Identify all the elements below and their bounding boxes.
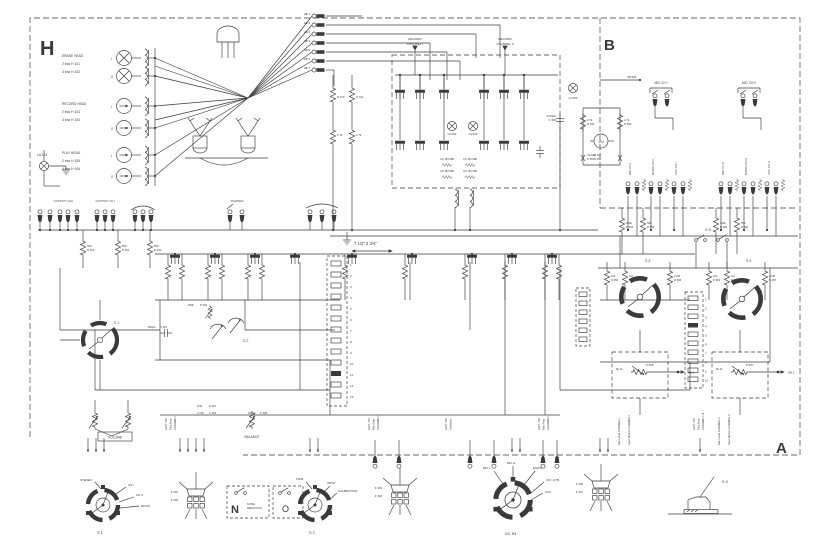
svg-text:3: 3 bbox=[350, 285, 352, 289]
svg-text:Rec Level CHANNEL I: Rec Level CHANNEL I bbox=[617, 418, 621, 445]
svg-text:F 501: F 501 bbox=[171, 490, 179, 494]
svg-text:R 351: R 351 bbox=[587, 122, 595, 126]
resv bbox=[80, 239, 85, 257]
svg-text:2.2M: 2.2M bbox=[769, 274, 776, 278]
transistor-icon bbox=[395, 141, 405, 150]
tape-recorder-schematic: HBAERASE HEAD2 trac H 1014 trac H 102III… bbox=[0, 0, 817, 543]
head-assembly-icon bbox=[236, 118, 260, 153]
svg-text:AUX: AUX bbox=[545, 490, 551, 494]
section-borders: HBA bbox=[30, 18, 800, 457]
resv bbox=[179, 263, 184, 281]
svg-text:REDUCTION: REDUCTION bbox=[247, 507, 262, 510]
phones-jack-icon bbox=[240, 210, 245, 223]
svg-text:S 1: S 1 bbox=[114, 321, 119, 325]
svg-text:2 trac H 105: 2 trac H 105 bbox=[62, 159, 80, 163]
svg-text:N: N bbox=[231, 504, 239, 516]
svg-text:HB 3: HB 3 bbox=[304, 30, 311, 34]
erase-head-icon bbox=[117, 51, 132, 66]
connector-pin-icon bbox=[312, 23, 325, 27]
connector-pin-icon bbox=[312, 50, 325, 54]
panel-plug-icon bbox=[492, 455, 497, 468]
input-jack-icon bbox=[728, 182, 733, 195]
svg-text:9: 9 bbox=[350, 351, 352, 355]
svg-text:MIC CH I: MIC CH I bbox=[654, 81, 667, 85]
record-head-icon bbox=[117, 121, 132, 136]
svg-text:LA 502: LA 502 bbox=[448, 132, 457, 136]
svg-text:13: 13 bbox=[350, 395, 354, 399]
svg-text:HB 1: HB 1 bbox=[304, 12, 311, 16]
svg-text:HB 6: HB 6 bbox=[304, 57, 311, 61]
transistor-icon bbox=[250, 255, 260, 264]
svg-text:RECORD: RECORD bbox=[408, 37, 422, 41]
svg-text:2: 2 bbox=[705, 307, 707, 311]
lamp-la503-icon bbox=[468, 121, 477, 130]
svg-text:4: 4 bbox=[350, 296, 352, 300]
svg-text:2.2M: 2.2M bbox=[674, 274, 681, 278]
resv bbox=[165, 263, 170, 281]
phones-jack-icon bbox=[228, 210, 233, 223]
output-jack-icon bbox=[66, 210, 71, 223]
connector-pin-icon bbox=[312, 14, 325, 18]
svg-text:4 trac H 106: 4 trac H 106 bbox=[62, 167, 80, 171]
svg-text:Rec Amp: Rec Amp bbox=[542, 419, 546, 430]
svg-text:CH II: CH II bbox=[136, 493, 143, 497]
svg-text:CHANNEL II: CHANNEL II bbox=[496, 42, 513, 46]
svg-text:250k: 250k bbox=[188, 303, 194, 307]
svg-text:AUX CH I: AUX CH I bbox=[674, 162, 678, 175]
svg-text:R 100: R 100 bbox=[337, 95, 345, 99]
svg-text:P 506: P 506 bbox=[646, 363, 654, 367]
input-jack-icon bbox=[774, 182, 779, 195]
svg-text:4 trac H 102: 4 trac H 102 bbox=[62, 70, 80, 74]
resv bbox=[735, 179, 739, 192]
svg-text:LA 101: LA 101 bbox=[37, 153, 47, 157]
svg-text:AB 2: AB 2 bbox=[788, 371, 795, 375]
svg-text:H: H bbox=[40, 38, 54, 60]
connector-pin-icon bbox=[312, 32, 325, 36]
coil bbox=[455, 189, 458, 208]
resv bbox=[640, 216, 645, 234]
resv bbox=[622, 269, 627, 287]
svg-text:2: 2 bbox=[350, 274, 352, 278]
record-head-icon bbox=[117, 99, 132, 114]
svg-text:Rec Level CHANNEL II: Rec Level CHANNEL II bbox=[717, 417, 721, 445]
volume-pot-icon bbox=[89, 411, 98, 429]
output-jack-icon bbox=[95, 210, 100, 223]
panel-plug-icon bbox=[373, 455, 378, 468]
rec-level-section: 5k linP 506AB 1Rec Level CHANNEL IInput … bbox=[164, 330, 795, 445]
output-jack-icon bbox=[48, 210, 53, 223]
resv bbox=[219, 263, 224, 281]
svg-text:2 trac H 101: 2 trac H 101 bbox=[62, 62, 80, 66]
svg-text:OUTPUT CHII: OUTPUT CHII bbox=[53, 199, 72, 203]
svg-text:PLAY HEAD: PLAY HEAD bbox=[62, 151, 81, 155]
resv bbox=[713, 216, 718, 234]
svg-text:10: 10 bbox=[705, 379, 709, 383]
svg-text:F 307: F 307 bbox=[576, 490, 584, 494]
svg-text:12: 12 bbox=[350, 384, 354, 388]
svg-text:S 2: S 2 bbox=[243, 339, 248, 343]
svg-text:OUTPUT CH I: OUTPUT CH I bbox=[95, 199, 114, 203]
detail-row: STEREOCH ICH IIMONOS 1F 501F 502NNOISERE… bbox=[80, 461, 732, 536]
svg-text:AA 116: AA 116 bbox=[593, 153, 602, 157]
svg-text:4: 4 bbox=[705, 325, 707, 329]
transistor-icon bbox=[499, 141, 509, 150]
svg-text:250μF: 250μF bbox=[248, 411, 256, 415]
mic-jack-icon bbox=[653, 94, 658, 107]
noise-switch-icon bbox=[279, 488, 291, 495]
svg-text:O: O bbox=[282, 504, 289, 514]
rotary-switch-s4 bbox=[723, 280, 760, 317]
rec-level-pot bbox=[731, 366, 749, 375]
svg-text:I: I bbox=[111, 57, 112, 61]
transistor-icon bbox=[415, 141, 425, 150]
svg-text:9: 9 bbox=[705, 370, 707, 374]
transistor-icon bbox=[439, 141, 449, 150]
schematic-art: HBAERASE HEAD2 trac H 1014 trac H 102III… bbox=[30, 12, 800, 536]
plug-detail-icon bbox=[584, 464, 618, 511]
connector-pin-icon bbox=[312, 59, 325, 63]
resv bbox=[619, 216, 624, 234]
wafer-switch-s2 bbox=[228, 318, 244, 333]
mic-jack-icon bbox=[665, 94, 670, 107]
rec-level-pot bbox=[631, 366, 649, 375]
aux-jack-icon bbox=[332, 210, 337, 223]
svg-text:5k lin: 5k lin bbox=[616, 367, 623, 371]
svg-text:2.7k: 2.7k bbox=[356, 133, 362, 137]
svg-text:LEFT 720: LEFT 720 bbox=[537, 418, 541, 430]
connector-pin-icon bbox=[312, 41, 325, 45]
svg-text:10k: 10k bbox=[611, 274, 616, 278]
resv bbox=[330, 128, 335, 146]
svg-text:S3, S4: S3, S4 bbox=[505, 532, 516, 536]
head-section: ERASE HEAD2 trac H 1014 trac H 102IIIREC… bbox=[37, 48, 156, 186]
resv bbox=[734, 216, 739, 234]
svg-text:HB 2: HB 2 bbox=[304, 21, 311, 25]
svg-text:LEFT 730: LEFT 730 bbox=[444, 418, 448, 430]
rotary-switch-s1 bbox=[83, 323, 117, 357]
resv bbox=[259, 263, 264, 281]
coil bbox=[145, 119, 148, 138]
svg-text:A: A bbox=[776, 440, 787, 457]
svg-text:LEFT 700: LEFT 700 bbox=[164, 418, 168, 430]
svg-text:AUX CH II: AUX CH II bbox=[767, 161, 771, 175]
svg-text:R 359: R 359 bbox=[720, 225, 728, 229]
svg-text:S 2: S 2 bbox=[309, 531, 315, 535]
svg-text:STEREO: STEREO bbox=[80, 478, 93, 482]
play-head-icon bbox=[117, 148, 132, 163]
svg-text:7: 7 bbox=[350, 329, 352, 333]
svg-text:AC 187/188: AC 187/188 bbox=[440, 169, 454, 173]
svg-text:2 trac H 103: 2 trac H 103 bbox=[62, 110, 80, 114]
record-amp-block: RECORDCHANNEL IRECORDCHANNEL IILA 502LA … bbox=[330, 37, 558, 231]
resv bbox=[706, 269, 711, 287]
schematic-page: HBAERASE HEAD2 trac H 1014 trac H 102III… bbox=[0, 0, 817, 543]
svg-text:AC 187/188: AC 187/188 bbox=[463, 169, 477, 173]
svg-text:MIC CH I: MIC CH I bbox=[628, 163, 632, 175]
transistor-icon bbox=[407, 255, 417, 264]
svg-text:I: I bbox=[111, 154, 112, 158]
input-jack-icon bbox=[626, 182, 631, 195]
resv bbox=[115, 239, 120, 257]
volume-pot-icon bbox=[122, 411, 131, 429]
lamp-la500-icon bbox=[568, 83, 577, 92]
svg-text:1M: 1M bbox=[731, 274, 735, 278]
svg-text:MIC H: MIC H bbox=[507, 461, 515, 465]
svg-text:R 354: R 354 bbox=[626, 225, 634, 229]
panel-plug-icon bbox=[555, 455, 560, 468]
svg-text:CHANNEL I: CHANNEL I bbox=[546, 416, 550, 430]
resv bbox=[688, 179, 692, 192]
svg-text:TAPE: TAPE bbox=[296, 477, 303, 481]
svg-text:S 4: S 4 bbox=[746, 259, 751, 263]
panel-plug-icon bbox=[468, 455, 473, 468]
svg-text:Input Device CHANNEL I: Input Device CHANNEL I bbox=[627, 415, 631, 445]
resv bbox=[402, 263, 407, 281]
mic-jack-icon bbox=[753, 94, 758, 107]
output-jack-icon bbox=[38, 210, 43, 223]
coil bbox=[470, 189, 473, 208]
svg-text:CHANNEL II: CHANNEL II bbox=[376, 415, 380, 430]
aux-jack-icon bbox=[308, 210, 313, 223]
input-jack-icon bbox=[719, 182, 724, 195]
svg-text:RADIO CH II: RADIO CH II bbox=[744, 158, 748, 175]
resv bbox=[781, 179, 785, 192]
input-section: MIC CH IMIC CH IIMIC CH IRADIO CH IAUX C… bbox=[626, 81, 785, 236]
svg-text:P 303: P 303 bbox=[200, 303, 207, 307]
output-jack-icon bbox=[133, 210, 138, 223]
resv bbox=[147, 239, 152, 257]
svg-text:CALIBRATION: CALIBRATION bbox=[338, 489, 357, 493]
svg-text:LA 503: LA 503 bbox=[469, 132, 478, 136]
aux-jack-icon bbox=[320, 210, 325, 223]
input-jack-icon bbox=[742, 182, 747, 195]
svg-text:AC 187/188: AC 187/188 bbox=[440, 157, 454, 161]
svg-text:VU: VU bbox=[598, 140, 604, 144]
svg-text:PHONES: PHONES bbox=[231, 199, 244, 203]
wafer-switch-s2 bbox=[210, 324, 226, 339]
svg-text:RADIO: RADIO bbox=[533, 466, 543, 470]
transistor-icon bbox=[290, 255, 300, 264]
svg-text:B: B bbox=[604, 37, 615, 54]
resv bbox=[462, 263, 467, 281]
resv bbox=[758, 179, 762, 192]
svg-text:11: 11 bbox=[350, 373, 353, 377]
output-jack-icon bbox=[58, 210, 63, 223]
svg-text:7 1/2" 3 3/4": 7 1/2" 3 3/4" bbox=[354, 241, 377, 246]
play-head-icon bbox=[117, 169, 132, 184]
transistor-icon bbox=[347, 255, 357, 264]
svg-text:2.7k: 2.7k bbox=[337, 133, 343, 137]
svg-text:NOISE: NOISE bbox=[247, 503, 255, 506]
svg-text:10k: 10k bbox=[713, 274, 718, 278]
resv bbox=[465, 175, 476, 178]
svg-text:5k lin: 5k lin bbox=[716, 367, 723, 371]
svg-text:8: 8 bbox=[705, 361, 707, 365]
svg-text:HB 7: HB 7 bbox=[304, 66, 311, 70]
svg-text:S 1: S 1 bbox=[97, 531, 103, 535]
svg-text:CHANNEL I+II: CHANNEL I+II bbox=[701, 412, 705, 430]
svg-text:LEFT 750: LEFT 750 bbox=[692, 418, 696, 430]
svg-text:56k: 56k bbox=[741, 221, 746, 225]
s3s4-detail-icon bbox=[493, 477, 532, 517]
transistor-icon bbox=[479, 141, 489, 150]
svg-text:R 301: R 301 bbox=[122, 248, 130, 252]
switches: S 1S 2S 3S 4S 5220kR 35456kR 355220kR 35… bbox=[60, 208, 777, 390]
svg-text:Rec Amp: Rec Amp bbox=[372, 419, 376, 430]
svg-text:AC 187/188: AC 187/188 bbox=[463, 157, 477, 161]
svg-text:Play Amp: Play Amp bbox=[697, 418, 701, 430]
svg-text:INPUT: INPUT bbox=[327, 481, 336, 485]
svg-text:AB 1: AB 1 bbox=[688, 371, 695, 375]
connector-pin-icon bbox=[312, 68, 325, 72]
plug-detail-icon bbox=[383, 468, 417, 515]
input-jack-icon bbox=[681, 182, 686, 195]
plug-detail-icon bbox=[179, 472, 213, 519]
s1-detail-icon bbox=[86, 485, 120, 520]
svg-text:S 3: S 3 bbox=[645, 259, 650, 263]
svg-text:10: 10 bbox=[350, 362, 354, 366]
svg-text:LA 500: LA 500 bbox=[569, 96, 578, 100]
resv bbox=[665, 179, 669, 192]
svg-text:CD I (178): CD I (178) bbox=[546, 478, 559, 482]
svg-text:Input Device CHANNEL II: Input Device CHANNEL II bbox=[727, 414, 731, 445]
resv bbox=[349, 86, 354, 104]
svg-text:6: 6 bbox=[350, 318, 352, 322]
svg-text:VOLUME: VOLUME bbox=[108, 436, 123, 440]
output-jack-icon bbox=[75, 210, 80, 223]
svg-text:HB 5: HB 5 bbox=[304, 48, 311, 52]
svg-text:RADIO CH I: RADIO CH I bbox=[651, 158, 655, 175]
svg-text:II: II bbox=[111, 175, 113, 179]
svg-text:R 360: R 360 bbox=[741, 225, 749, 229]
output-jack-icon bbox=[149, 210, 154, 223]
svg-text:R 367: R 367 bbox=[769, 278, 777, 282]
svg-text:5: 5 bbox=[350, 307, 352, 311]
svg-text:4 trac H 104: 4 trac H 104 bbox=[62, 118, 80, 122]
svg-text:S 5: S 5 bbox=[705, 228, 710, 232]
transistor-icon bbox=[210, 255, 220, 264]
svg-text:C 305: C 305 bbox=[260, 411, 268, 415]
svg-text:R 364: R 364 bbox=[731, 278, 739, 282]
input-jack-icon bbox=[765, 182, 770, 195]
svg-text:CHANNEL I: CHANNEL I bbox=[407, 42, 424, 46]
svg-text:Oscillator: Oscillator bbox=[449, 419, 453, 430]
svg-text:P 507: P 507 bbox=[746, 363, 754, 367]
input-jack-icon bbox=[672, 182, 677, 195]
output-jack-icon bbox=[103, 210, 108, 223]
input-jack-icon bbox=[649, 182, 654, 195]
output-jack-icon bbox=[141, 210, 146, 223]
resv bbox=[642, 179, 646, 192]
svg-text:R 366: R 366 bbox=[674, 278, 682, 282]
noise-switch-icon bbox=[235, 488, 247, 495]
svg-text:II: II bbox=[111, 75, 113, 79]
mic-jack-icon bbox=[741, 94, 746, 107]
svg-text:CH I: CH I bbox=[128, 483, 134, 487]
svg-text:ERASE HEAD: ERASE HEAD bbox=[62, 54, 84, 58]
input-jack-icon bbox=[635, 182, 640, 195]
resv bbox=[349, 128, 354, 146]
bus-lines: 7 1/2" 3 3/4" bbox=[38, 230, 798, 415]
svg-text:R 302: R 302 bbox=[154, 248, 162, 252]
svg-text:5: 5 bbox=[705, 334, 707, 338]
svg-text:R 355: R 355 bbox=[647, 225, 655, 229]
svg-text:F 304: F 304 bbox=[375, 494, 383, 498]
resv bbox=[442, 175, 453, 178]
head-assembly-icon bbox=[188, 118, 212, 153]
resv bbox=[442, 163, 453, 166]
svg-text:C 304: C 304 bbox=[209, 411, 217, 415]
resv bbox=[604, 269, 609, 287]
capv bbox=[536, 146, 544, 158]
transistor-icon bbox=[519, 141, 529, 150]
svg-text:MIC CH II: MIC CH II bbox=[721, 162, 725, 175]
resv bbox=[724, 269, 729, 287]
panel-plug-icon bbox=[397, 455, 402, 468]
svg-text:6: 6 bbox=[705, 343, 707, 347]
svg-text:MONO: MONO bbox=[141, 504, 151, 508]
lamp-la502-icon bbox=[447, 121, 456, 130]
svg-text:D 354: D 354 bbox=[594, 157, 601, 161]
svg-text:1: 1 bbox=[705, 298, 707, 302]
svg-text:C 301: C 301 bbox=[160, 325, 168, 329]
svg-text:220k: 220k bbox=[720, 221, 726, 225]
svg-text:BALANCE: BALANCE bbox=[245, 435, 260, 439]
svg-text:3: 3 bbox=[705, 316, 707, 320]
svg-text:R 300: R 300 bbox=[87, 248, 95, 252]
svg-text:R 357: R 357 bbox=[629, 278, 637, 282]
pilot-lamp-icon bbox=[39, 161, 48, 170]
gnd bbox=[343, 236, 351, 244]
svg-text:RECORD: RECORD bbox=[498, 37, 512, 41]
capv bbox=[160, 329, 172, 337]
coil bbox=[145, 97, 148, 116]
input-jack-icon bbox=[751, 182, 756, 195]
svg-text:C 353: C 353 bbox=[549, 118, 557, 122]
svg-text:LEFT 710: LEFT 710 bbox=[367, 418, 371, 430]
input-jack-icon bbox=[658, 182, 663, 195]
svg-text:CHANNEL I: CHANNEL I bbox=[173, 416, 177, 430]
output-jack-icon bbox=[111, 210, 116, 223]
svg-text:4.7μF: 4.7μF bbox=[197, 411, 204, 415]
svg-text:MIC L: MIC L bbox=[483, 466, 491, 470]
resv bbox=[205, 263, 210, 281]
coil bbox=[145, 49, 148, 68]
vu-meter-block: 4700μFC 3532.7kR 3512.7kR 352VUAA 116D 3… bbox=[546, 75, 641, 231]
bottom-leads bbox=[88, 438, 700, 468]
transistor-icon bbox=[467, 255, 477, 264]
connector-strips: 1234567891011121312345678910 bbox=[327, 256, 709, 406]
svg-text:MIC CH II: MIC CH II bbox=[742, 81, 756, 85]
resv bbox=[245, 263, 250, 281]
resv bbox=[556, 263, 561, 281]
svg-text:7: 7 bbox=[705, 352, 707, 356]
svg-text:R 363: R 363 bbox=[713, 278, 721, 282]
transistor-icon bbox=[547, 255, 557, 264]
erase-head-icon bbox=[117, 69, 132, 84]
resv bbox=[465, 163, 476, 166]
transistor-icon bbox=[507, 255, 517, 264]
svg-text:AB 582: AB 582 bbox=[627, 75, 637, 79]
svg-text:RECORD HEAD: RECORD HEAD bbox=[62, 102, 87, 106]
svg-text:I: I bbox=[111, 105, 112, 109]
svg-text:II: II bbox=[111, 127, 113, 131]
svg-text:F 502: F 502 bbox=[171, 498, 179, 502]
svg-text:8: 8 bbox=[350, 340, 352, 344]
rotary-switch-s3 bbox=[621, 278, 658, 315]
head-connector: HB 1HB 2HB 3HB 4HB 5HB 6HB 7 bbox=[155, 12, 500, 176]
